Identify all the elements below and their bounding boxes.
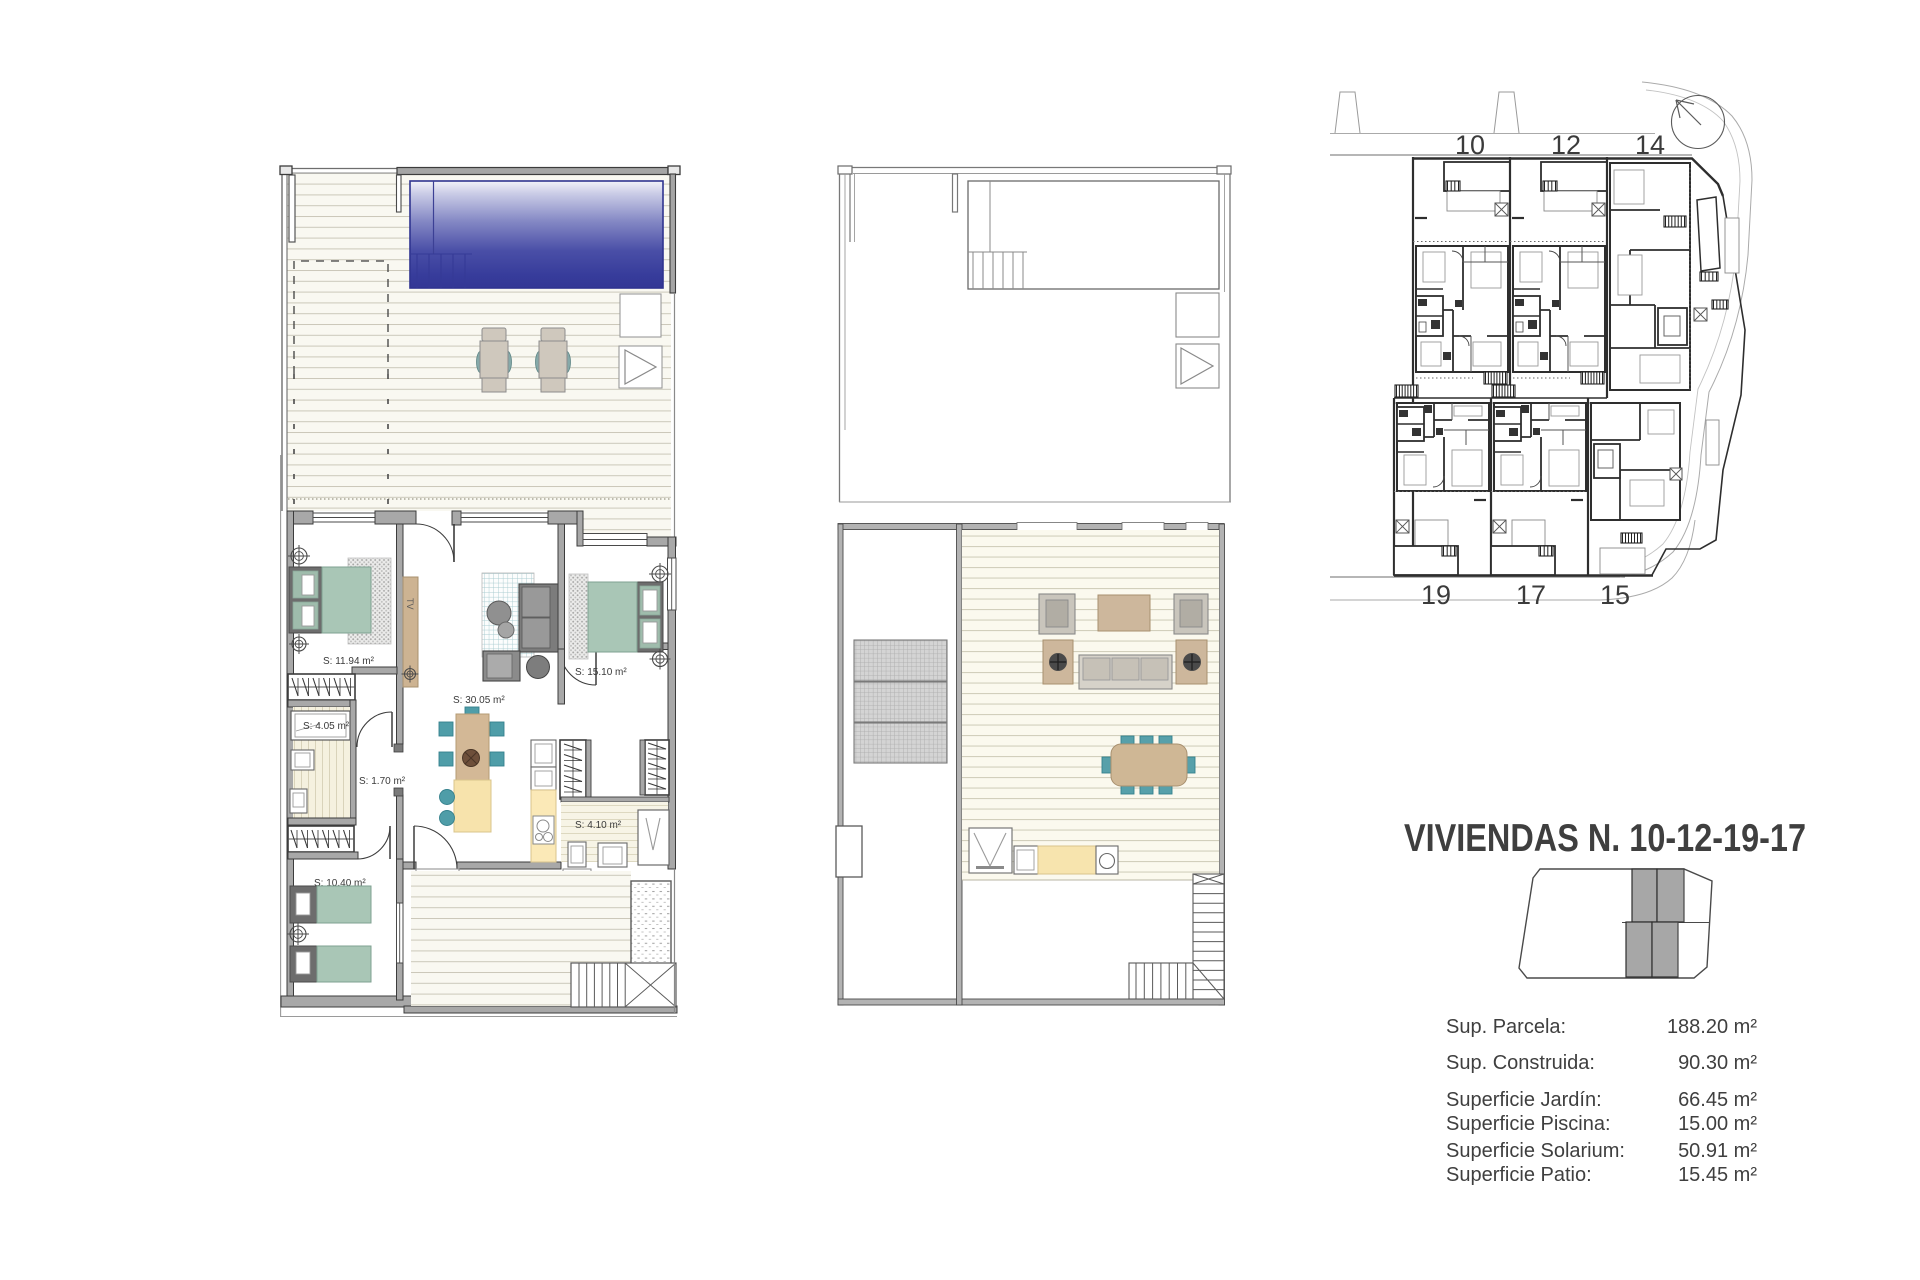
- svg-text:12: 12: [1551, 130, 1581, 160]
- svg-text:S: 4.05 m²: S: 4.05 m²: [303, 721, 350, 732]
- svg-text:14: 14: [1635, 130, 1665, 160]
- svg-text:15.45 m²: 15.45 m²: [1678, 1164, 1757, 1186]
- svg-text:S: 4.10 m²: S: 4.10 m²: [575, 820, 622, 831]
- svg-text:66.45 m²: 66.45 m²: [1678, 1089, 1757, 1111]
- svg-text:VIVIENDAS N. 10-12-19-17: VIVIENDAS N. 10-12-19-17: [1404, 817, 1806, 860]
- svg-text:Superficie Solarium:: Superficie Solarium:: [1446, 1140, 1625, 1162]
- svg-text:S: 30.05 m²: S: 30.05 m²: [453, 695, 505, 706]
- svg-text:TV: TV: [405, 598, 415, 610]
- svg-text:Superficie Patio:: Superficie Patio:: [1446, 1164, 1592, 1186]
- svg-text:50.91 m²: 50.91 m²: [1678, 1140, 1757, 1162]
- svg-text:S: 11.94 m²: S: 11.94 m²: [323, 656, 375, 667]
- svg-text:Superficie Piscina:: Superficie Piscina:: [1446, 1113, 1611, 1135]
- svg-text:188.20 m²: 188.20 m²: [1667, 1016, 1757, 1038]
- svg-text:Sup. Parcela:: Sup. Parcela:: [1446, 1016, 1566, 1038]
- svg-text:15.00 m²: 15.00 m²: [1678, 1113, 1757, 1135]
- svg-text:17: 17: [1516, 580, 1546, 610]
- svg-text:19: 19: [1421, 580, 1451, 610]
- svg-text:15: 15: [1600, 580, 1630, 610]
- svg-text:Superficie Jardín:: Superficie Jardín:: [1446, 1089, 1602, 1111]
- svg-text:S: 15.10 m²: S: 15.10 m²: [575, 667, 627, 678]
- svg-text:Sup. Construida:: Sup. Construida:: [1446, 1052, 1595, 1074]
- svg-text:10: 10: [1455, 130, 1485, 160]
- svg-text:S: 1.70 m²: S: 1.70 m²: [359, 776, 406, 787]
- svg-text:90.30 m²: 90.30 m²: [1678, 1052, 1757, 1074]
